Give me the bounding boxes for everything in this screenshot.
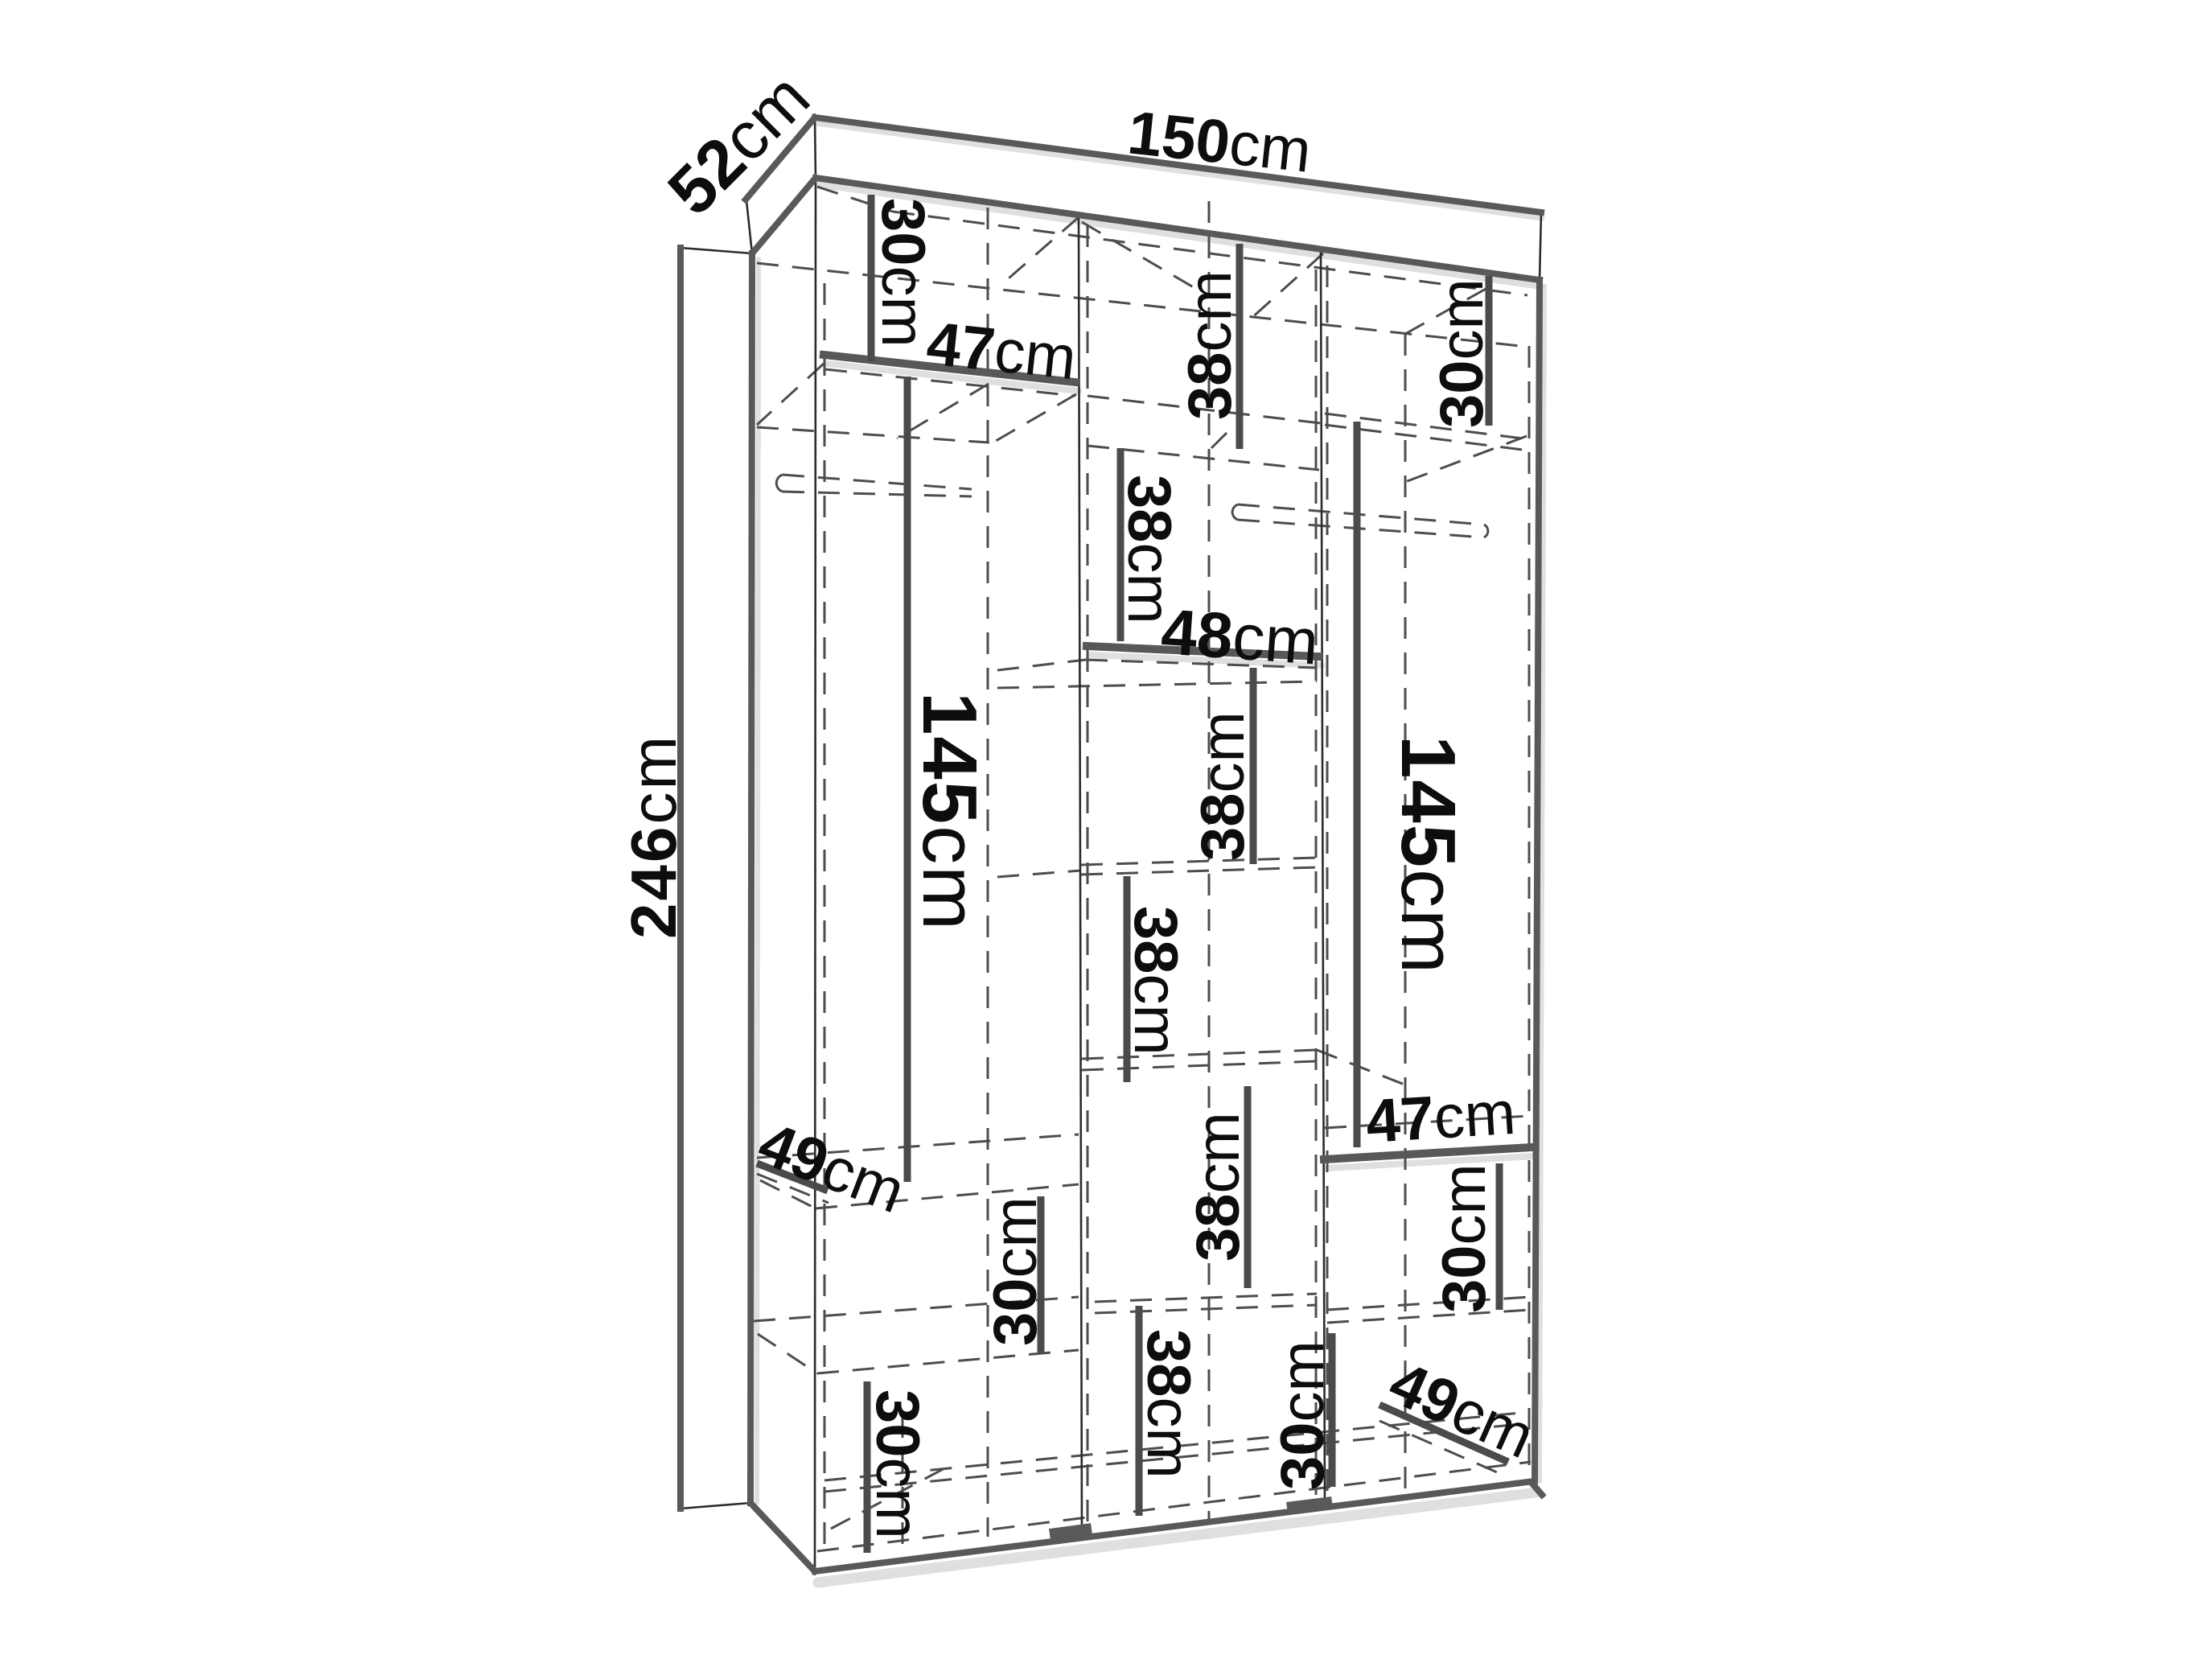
svg-text:38cm: 38cm: [1121, 906, 1190, 1056]
svg-text:38cm: 38cm: [1115, 475, 1183, 624]
svg-text:47cm: 47cm: [1364, 1079, 1518, 1156]
svg-text:30cm: 30cm: [863, 1389, 931, 1539]
svg-text:30cm: 30cm: [1268, 1340, 1337, 1490]
svg-text:38cm: 38cm: [1184, 1112, 1252, 1262]
svg-text:30cm: 30cm: [1428, 278, 1496, 428]
svg-text:30cm: 30cm: [869, 198, 937, 348]
svg-text:145cm: 145cm: [1385, 735, 1471, 975]
svg-text:145cm: 145cm: [907, 692, 993, 932]
svg-text:38cm: 38cm: [1176, 270, 1244, 420]
svg-text:38cm: 38cm: [1189, 711, 1257, 861]
svg-text:30cm: 30cm: [981, 1196, 1050, 1346]
svg-text:30cm: 30cm: [1430, 1163, 1499, 1313]
svg-text:246cm: 246cm: [618, 734, 689, 939]
svg-text:38cm: 38cm: [1134, 1329, 1203, 1479]
